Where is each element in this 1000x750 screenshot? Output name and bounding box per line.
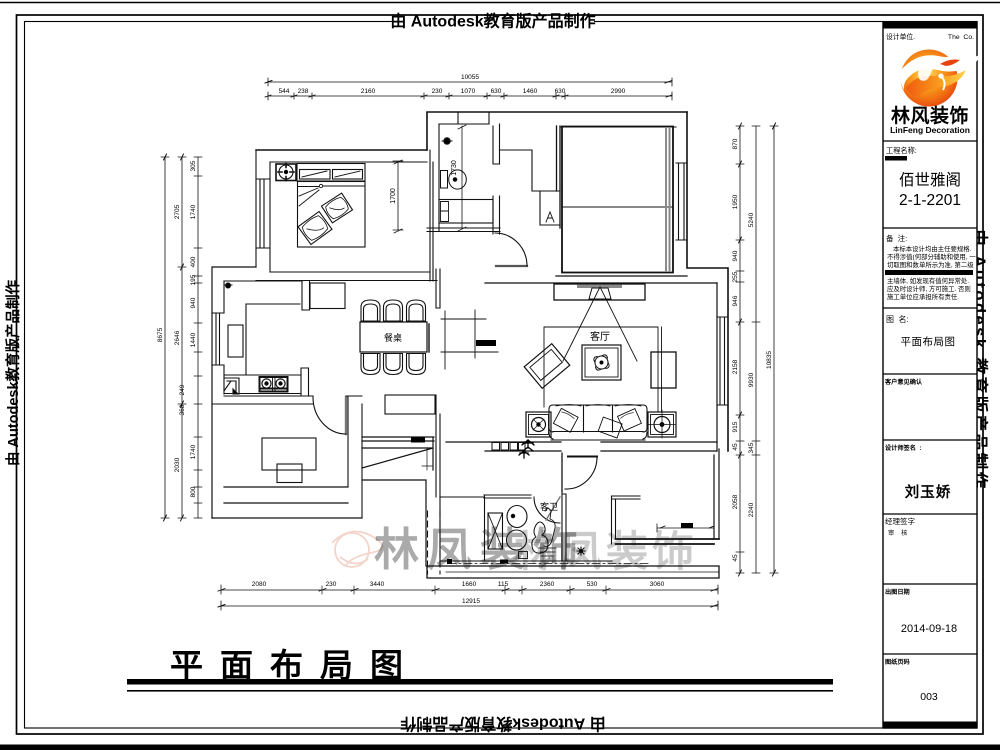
- svg-text:1440: 1440: [190, 332, 197, 347]
- svg-text:10055: 10055: [461, 74, 479, 81]
- svg-text:施工单位应承担所有责任.: 施工单位应承担所有责任.: [887, 292, 959, 301]
- svg-text:餐桌: 餐桌: [384, 332, 402, 343]
- svg-text:249: 249: [179, 384, 186, 395]
- svg-text:工程名称:: 工程名称:: [886, 146, 917, 155]
- svg-text:45: 45: [732, 554, 739, 562]
- svg-text:3440: 3440: [370, 581, 385, 588]
- svg-text:佰世雅阁: 佰世雅阁: [899, 171, 961, 189]
- svg-text:940: 940: [190, 297, 197, 308]
- svg-text:870: 870: [732, 138, 739, 149]
- svg-text:刘玉娇: 刘玉娇: [905, 483, 952, 501]
- svg-text:400: 400: [190, 256, 197, 267]
- svg-text:10835: 10835: [766, 351, 773, 369]
- svg-text:2014-09-18: 2014-09-18: [901, 623, 957, 635]
- svg-text:由 Autodesk教育版产品制作: 由 Autodesk教育版产品制作: [400, 715, 605, 734]
- svg-text:946: 946: [732, 295, 739, 306]
- svg-text:备 注:: 备 注:: [886, 233, 907, 243]
- svg-text:客卫: 客卫: [540, 501, 558, 512]
- svg-text:LinFeng Decoration: LinFeng Decoration: [890, 125, 970, 135]
- svg-text:2646: 2646: [174, 330, 181, 345]
- svg-text:2030: 2030: [174, 457, 181, 472]
- svg-text:2990: 2990: [611, 88, 626, 95]
- svg-text:305: 305: [190, 160, 197, 171]
- svg-text:应及时设计师, 方可施工. 否则: 应及时设计师, 方可施工. 否则: [887, 284, 971, 293]
- svg-text:630: 630: [491, 88, 502, 95]
- svg-text:客户意见确认: 客户意见确认: [884, 378, 923, 386]
- svg-text:切取图和数单所示为准, 第二级: 切取图和数单所示为准, 第二级: [887, 260, 974, 269]
- svg-text:1730: 1730: [451, 160, 458, 176]
- svg-text:12915: 12915: [462, 598, 480, 605]
- svg-text:3060: 3060: [650, 581, 665, 588]
- svg-text:5240: 5240: [748, 212, 755, 227]
- svg-text:940: 940: [732, 250, 739, 261]
- svg-text:2-1-2201: 2-1-2201: [899, 192, 961, 209]
- svg-text:图 名:: 图 名:: [886, 314, 909, 324]
- svg-text:林风装饰: 林风装饰: [891, 104, 969, 127]
- svg-text:由 Autodesk教育版产品制作: 由 Autodesk教育版产品制作: [390, 12, 595, 31]
- svg-text:由 Autodesk教育版产品制作: 由 Autodesk教育版产品制作: [4, 279, 22, 466]
- svg-text:主墙体, 如发现有值何异常处.: 主墙体, 如发现有值何异常处.: [887, 276, 969, 285]
- svg-text:9930: 9930: [748, 372, 755, 387]
- svg-text:不得涉值(何部分辅助和使用, 一: 不得涉值(何部分辅助和使用, 一: [887, 252, 976, 261]
- svg-text:图纸页码: 图纸页码: [885, 658, 910, 666]
- svg-text:2058: 2058: [732, 494, 739, 509]
- svg-text:255: 255: [732, 271, 739, 282]
- svg-text:003: 003: [920, 691, 938, 703]
- svg-text:800: 800: [190, 486, 197, 497]
- svg-text:2080: 2080: [252, 581, 267, 588]
- svg-text:2705: 2705: [174, 204, 181, 219]
- svg-text:368: 368: [179, 404, 186, 415]
- svg-text:2160: 2160: [361, 88, 376, 95]
- svg-text:2240: 2240: [748, 502, 755, 517]
- svg-text:1700: 1700: [390, 188, 397, 204]
- svg-text:1740: 1740: [190, 204, 197, 219]
- svg-text:544: 544: [279, 88, 290, 95]
- svg-text:2360: 2360: [540, 581, 555, 588]
- svg-text:1950: 1950: [732, 194, 739, 209]
- svg-text:The Co.: The Co.: [948, 34, 974, 41]
- svg-text:195: 195: [190, 274, 197, 285]
- svg-text:630: 630: [555, 88, 566, 95]
- svg-text:平面布局图: 平面布局图: [901, 336, 956, 348]
- svg-text:1660: 1660: [462, 581, 477, 588]
- svg-text:8675: 8675: [157, 327, 164, 342]
- svg-text:1460: 1460: [523, 88, 538, 95]
- svg-text:230: 230: [326, 581, 337, 588]
- svg-text:238: 238: [298, 88, 309, 95]
- svg-text:345: 345: [748, 442, 755, 453]
- svg-text:设计师签名 :: 设计师签名 :: [885, 444, 921, 452]
- svg-text:530: 530: [587, 581, 598, 588]
- svg-text:客厅: 客厅: [590, 330, 610, 343]
- svg-text:本标本设计均由主任要规格.: 本标本设计均由主任要规格.: [893, 244, 972, 253]
- svg-text:230: 230: [432, 88, 443, 95]
- svg-text:出图日期: 出图日期: [885, 588, 910, 596]
- svg-text:经理签字: 经理签字: [885, 516, 915, 526]
- svg-text:45: 45: [732, 443, 739, 451]
- svg-text:审 核: 审 核: [888, 529, 907, 537]
- svg-text:915: 915: [732, 421, 739, 432]
- svg-text:1740: 1740: [190, 444, 197, 459]
- svg-text:1070: 1070: [461, 88, 476, 95]
- svg-text:平面布局图: 平面布局图: [170, 647, 420, 684]
- svg-text:设计单位.: 设计单位.: [886, 32, 915, 41]
- svg-text:115: 115: [498, 581, 509, 588]
- svg-text:2158: 2158: [732, 359, 739, 374]
